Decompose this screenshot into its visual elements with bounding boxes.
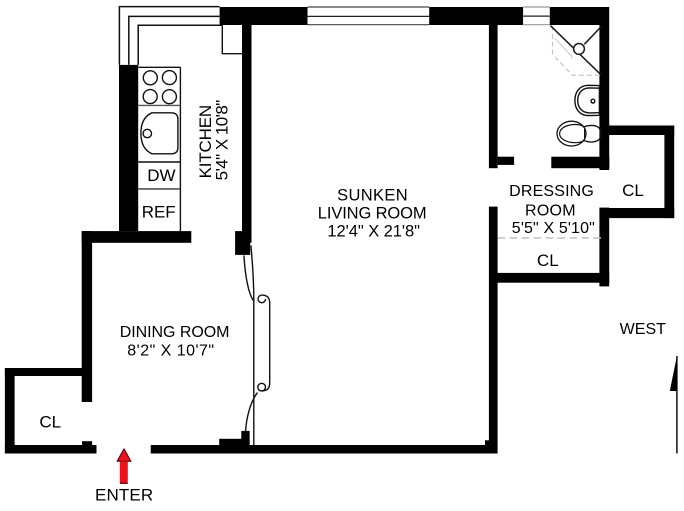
- svg-text:WEST: WEST: [620, 321, 667, 338]
- svg-text:ROOM: ROOM: [525, 202, 576, 219]
- svg-text:ENTER: ENTER: [95, 485, 153, 504]
- svg-text:DINING ROOM: DINING ROOM: [120, 324, 230, 341]
- svg-text:CL: CL: [622, 181, 644, 200]
- svg-text:LIVING ROOM: LIVING ROOM: [318, 204, 427, 222]
- svg-text:CL: CL: [537, 251, 559, 270]
- svg-text:5'5" X 5'10": 5'5" X 5'10": [512, 220, 595, 237]
- svg-text:REF: REF: [142, 203, 176, 222]
- svg-text:8'2" X 10'7": 8'2" X 10'7": [127, 343, 214, 360]
- svg-text:CL: CL: [39, 413, 61, 432]
- svg-text:DW: DW: [147, 166, 175, 185]
- svg-text:5'4" X 10'8": 5'4" X 10'8": [213, 100, 232, 181]
- svg-text:SUNKEN: SUNKEN: [337, 186, 408, 204]
- svg-text:DRESSING: DRESSING: [509, 183, 594, 200]
- svg-text:12'4" X 21'8": 12'4" X 21'8": [327, 222, 420, 240]
